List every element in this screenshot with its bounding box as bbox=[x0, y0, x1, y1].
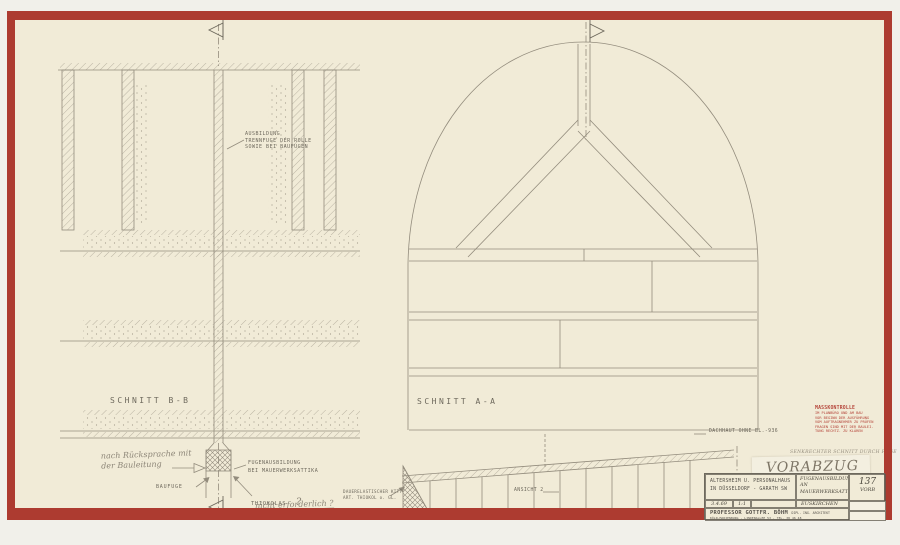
title-block-empty-cell bbox=[849, 501, 886, 511]
project-line1: ALTERSHEIM U. PERSONALHAUS bbox=[710, 478, 795, 486]
section-marker-icon bbox=[590, 20, 604, 42]
section-aa-label: SCHNITT A-A bbox=[417, 397, 497, 406]
title-block: ALTERSHEIM U. PERSONALHAUS IN DÜSSELDORF… bbox=[704, 473, 885, 520]
sealant-note: DAUERELASTISCHER KITT ART. THIOKOL o. GL… bbox=[343, 489, 402, 500]
title-block-scale: 1:1 bbox=[733, 500, 751, 508]
title-block-blank-cell bbox=[751, 500, 796, 508]
project-line2: IN DÜSSELDORF - GARATH SW bbox=[710, 486, 795, 494]
title-block-architect: PROFESSOR GOTTFR. BÖHM DIPL. ING. ARCHIT… bbox=[705, 508, 849, 521]
left-section-drawing bbox=[58, 24, 405, 512]
masskontrolle-stamp: MASSKONTROLLE IM PLANBÜRO UND AM BAU VOR… bbox=[815, 406, 887, 434]
title-block-empty-cell bbox=[849, 511, 886, 521]
title-block-project: ALTERSHEIM U. PERSONALHAUS IN DÜSSELDORF… bbox=[705, 474, 796, 500]
title-block-location: EUSKIRCHEN bbox=[796, 500, 849, 508]
dachhaut-label: DACHHAUT OHNE BL.-936 bbox=[709, 429, 778, 434]
vertical-section-handnote: SENKRECHTER SCHNITT DURCH FUGE bbox=[790, 450, 897, 455]
bauleitung-handnote: nach Rücksprache mit der Bauleitung bbox=[101, 448, 192, 471]
baufuge-label: BAUFUGE bbox=[156, 484, 183, 490]
ansicht-label: ANSICHT 2 bbox=[514, 488, 544, 493]
sheet-number: 137 bbox=[850, 475, 885, 487]
joint-formation-note: AUSBILDUNG TRENNFUGE DER ROLLE SOWIE BEI… bbox=[245, 131, 312, 151]
title-block-subject: FUGENAUSBILDUNG AN MAUERWERKSATTIKA bbox=[796, 474, 849, 500]
architect-address: KÖLN-MARIENBURG · LINDENALLEE 53 · TEL. … bbox=[710, 516, 848, 520]
sheet-number-sub: VORB bbox=[850, 487, 885, 493]
fugenausbildung-note: FUGENAUSBILDUNG BEI MAUERWERKSATTIKA bbox=[248, 459, 318, 475]
section-bb-label: SCHNITT B-B bbox=[110, 396, 190, 405]
right-section-drawing bbox=[402, 22, 758, 518]
stamp-body: IM PLANBÜRO UND AM BAU VOR BEGINN DER AU… bbox=[815, 411, 887, 434]
architect-title: DIPL. ING. ARCHITEKT bbox=[792, 511, 830, 515]
title-block-sheet-number: 137 VORB bbox=[849, 474, 886, 501]
title-block-date: 3.4.69 bbox=[705, 500, 733, 508]
scanned-drawing-sheet: AUSBILDUNG TRENNFUGE DER ROLLE SOWIE BEI… bbox=[0, 0, 900, 545]
section-marker-icon bbox=[209, 496, 223, 514]
section-marker-icon bbox=[209, 20, 223, 40]
